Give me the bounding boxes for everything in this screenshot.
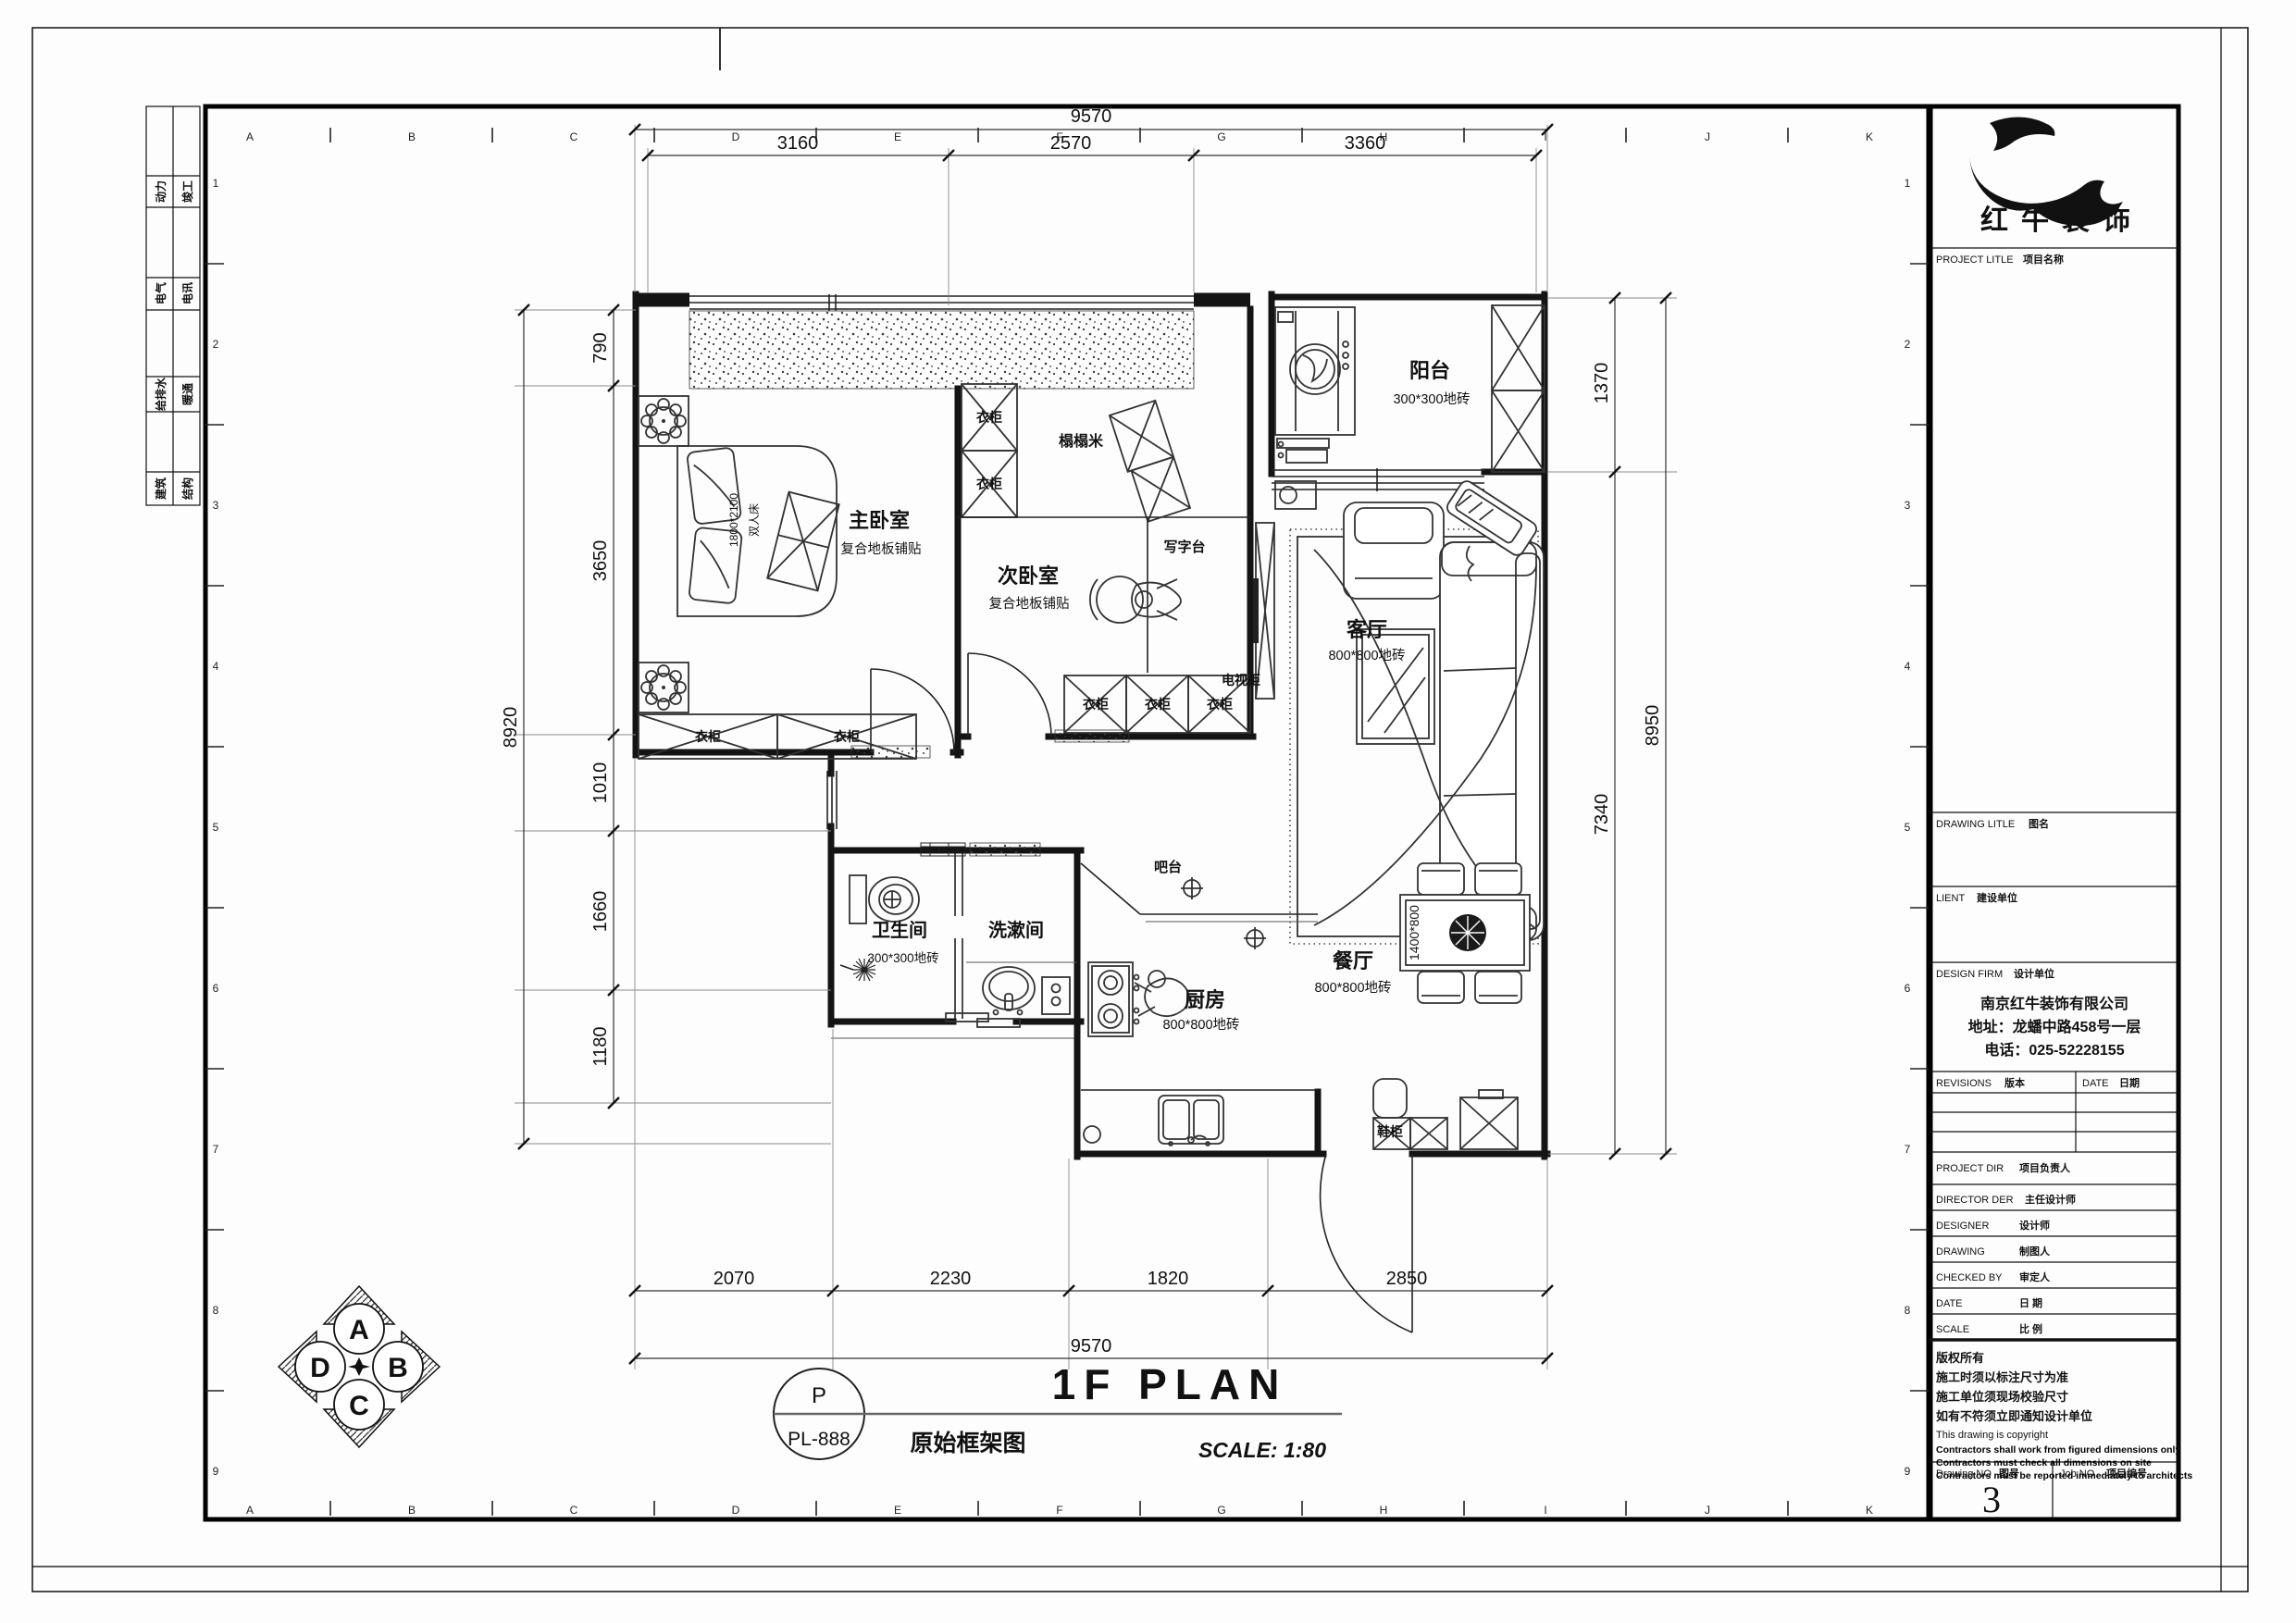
tatami-label: 榻榻米 — [1059, 432, 1104, 450]
second-bedroom-door — [968, 653, 1051, 737]
room-floor-balcony: 300*300地砖 — [1393, 391, 1470, 407]
floor-drain — [1275, 481, 1316, 509]
discipline-label: 电气 — [154, 282, 168, 304]
plant-box — [639, 663, 689, 712]
copyright-line: 施工单位须现场校验尺寸 — [1936, 1390, 2068, 1404]
compass: A B C D — [279, 1286, 440, 1447]
copyright-line: Contractors shall work from figured dime… — [1936, 1444, 2180, 1456]
tb-drawing-title-en: DRAWING LITLE — [1936, 819, 2015, 830]
room-floor-master: 复合地板铺贴 — [841, 540, 922, 557]
copyright-line: This drawing is copyright — [1936, 1430, 2048, 1441]
grid-number-right: 9 — [1905, 1465, 1911, 1478]
bay-window — [636, 294, 1250, 389]
dim-top-seg: 3360 — [1345, 133, 1386, 154]
grid-number-right: 2 — [1905, 338, 1911, 351]
room-label-living: 客厅 — [1347, 618, 1387, 641]
dim-right-seg: 7340 — [1592, 794, 1612, 836]
desk-chair-person — [1090, 576, 1181, 623]
tb-drawing-cn: 制图人 — [2019, 1245, 2051, 1258]
discipline-label: 电讯 — [180, 282, 194, 304]
room-label-bath: 卫生间 — [872, 920, 927, 941]
dim-bottom-seg: 2070 — [714, 1269, 755, 1289]
room-label-kitchen: 厨房 — [1185, 988, 1225, 1011]
grid-letter-top: D — [732, 130, 740, 143]
plan-scale: SCALE: 1:80 — [1198, 1438, 1326, 1462]
tb-checked-en: CHECKED BY — [1936, 1272, 2003, 1283]
grid-letter-bottom: F — [1056, 1504, 1062, 1517]
vanity — [966, 962, 1077, 1015]
master-bedroom: 1800*2100 双人床 衣柜 衣柜 主卧室 复合地板铺贴 — [639, 396, 922, 759]
dim-right-seg: 1370 — [1592, 363, 1612, 404]
dim-top-overall: 9570 — [1071, 106, 1112, 127]
bar-symbol — [1244, 927, 1266, 949]
dining-room: 1400*800 餐厅 800*800地砖 鞋柜 — [1314, 863, 1530, 1149]
dim-bottom-seg: 1820 — [1148, 1269, 1189, 1289]
grid-letter-top: K — [1866, 130, 1873, 143]
grid-letter-top: E — [894, 130, 901, 143]
bathroom: 卫生间 300*300地砖 洗漱间 — [840, 875, 1077, 1015]
tb-scale-cn: 比 例 — [2019, 1322, 2042, 1335]
wardrobe-label: 衣柜 — [1207, 697, 1233, 712]
grid-letter-top: B — [408, 130, 416, 143]
grid-number-right: 8 — [1905, 1304, 1911, 1317]
grid-letter-bottom: C — [570, 1504, 578, 1517]
room-label-wash: 洗漱间 — [988, 920, 1044, 941]
tb-drawing-en: DRAWING — [1936, 1246, 1985, 1258]
dim-left-overall: 8920 — [501, 707, 521, 749]
dim-top-seg: 2570 — [1050, 133, 1092, 154]
copyright-line: 施工时须以标注尺寸为准 — [1936, 1370, 2068, 1384]
grid-number-left: 6 — [213, 982, 219, 995]
washing-machine — [1275, 307, 1355, 435]
tb-client-en: LIENT — [1936, 893, 1965, 904]
copyright-line: Contractors must check all dimensions on… — [1936, 1457, 2152, 1468]
plan-subtitle: 原始框架图 — [910, 1431, 1025, 1456]
plan-title-bar: P PL-888 1F PLAN 原始框架图 SCALE: 1:80 — [774, 1360, 1342, 1462]
tb-date-cn: 日期 — [2119, 1076, 2140, 1089]
grid-number-left: 4 — [213, 660, 219, 673]
shoe-cabinet-label: 鞋柜 — [1377, 1124, 1403, 1139]
kitchen-sink — [1159, 1096, 1223, 1146]
tb-company-name: 南京红牛装饰有限公司 — [1980, 995, 2128, 1012]
master-bedroom-door — [871, 669, 954, 752]
grid-letter-top: G — [1217, 130, 1225, 143]
double-bed: 1800*2100 双人床 — [677, 446, 839, 616]
tb-drawing-no-cn: 图号 — [1999, 1468, 2019, 1480]
copyright-line: 版权所有 — [1936, 1351, 1984, 1365]
armchair — [1344, 502, 1444, 599]
kitchen-drain — [1084, 1126, 1100, 1143]
grid-number-right: 3 — [1905, 499, 1911, 512]
room-label-second: 次卧室 — [998, 564, 1059, 588]
tb-company-phone: 电话：025-52228155 — [1984, 1041, 2124, 1059]
grid-letter-bottom: H — [1380, 1504, 1388, 1517]
compass-label-n: A — [349, 1315, 369, 1345]
tv-cabinet-label: 电视柜 — [1222, 673, 1260, 688]
room-label-dining: 餐厅 — [1333, 949, 1373, 973]
wardrobe-label: 衣柜 — [1083, 697, 1109, 712]
tb-design-firm-cn: 设计单位 — [2014, 967, 2054, 980]
grid-number-left: 7 — [213, 1143, 219, 1156]
tb-checked-cn: 审定人 — [2019, 1270, 2051, 1283]
grid-letter-bottom: G — [1217, 1504, 1225, 1517]
dim-left-seg: 1010 — [590, 762, 611, 804]
dim-top-seg: 3160 — [777, 133, 819, 154]
grid-number-left: 1 — [213, 177, 219, 190]
tb-revisions-en: REVISIONS — [1936, 1078, 1992, 1089]
sheet-borders — [32, 28, 2248, 1592]
tb-date-en: DATE — [2082, 1078, 2109, 1089]
tb-project-dir-cn: 项目负责人 — [2019, 1161, 2071, 1174]
tatami-pillows — [1110, 401, 1190, 523]
grid-number-left: 3 — [213, 499, 219, 512]
grid-letter-top: J — [1705, 130, 1710, 143]
tb-client-cn: 建设单位 — [1977, 891, 2017, 904]
tb-date2-en: DATE — [1936, 1298, 1963, 1309]
wardrobe-label: 衣柜 — [1145, 697, 1171, 712]
tb-job-no-cn: 项目编号 — [2106, 1467, 2147, 1480]
bed-name-label: 双人床 — [748, 503, 761, 537]
compass-label-s: C — [349, 1391, 369, 1421]
floor-plan: 1800*2100 双人床 衣柜 衣柜 主卧室 复合地板铺贴 衣柜 — [636, 294, 1547, 1332]
grid-number-right: 6 — [1905, 982, 1911, 995]
tb-drawing-no-value: 3 — [1982, 1479, 2001, 1520]
company-logo-text: 红牛装饰 — [1980, 205, 2143, 236]
room-floor-kitchen: 800*800地砖 — [1162, 1017, 1239, 1033]
second-bedroom: 衣柜 衣柜 榻榻米 写字台 — [958, 384, 1250, 733]
discipline-label: 建筑 — [154, 477, 168, 501]
dim-bottom-seg: 2850 — [1386, 1269, 1428, 1289]
kitchen-person — [1135, 971, 1189, 1016]
tb-revisions-cn: 版本 — [2004, 1076, 2025, 1089]
room-label-balcony: 阳台 — [1409, 359, 1450, 382]
plan-ref-number: PL-888 — [788, 1429, 850, 1450]
tb-design-firm-en: DESIGN FIRM — [1936, 969, 2003, 980]
grid-letter-top: C — [570, 130, 578, 143]
writing-desk: 写字台 — [1148, 517, 1206, 673]
wardrobe-label: 衣柜 — [976, 410, 1002, 425]
discipline-label: 给排水 — [154, 377, 168, 411]
dim-bottom-seg: 2230 — [930, 1269, 972, 1289]
wardrobe-label: 衣柜 — [695, 729, 721, 744]
kitchen: 吧台 — [1081, 859, 1318, 1146]
plant-box — [639, 396, 689, 446]
grid-number-left: 5 — [213, 821, 219, 834]
dim-right-overall: 8950 — [1643, 705, 1663, 747]
room-floor-second: 复合地板铺贴 — [989, 595, 1070, 612]
tb-project-title-cn: 项目名称 — [2023, 253, 2064, 266]
toilet — [850, 875, 919, 923]
balcony: 阳台 300*300地砖 — [1275, 305, 1545, 509]
company-logo: 红牛装饰 — [1969, 117, 2143, 236]
tb-project-title-en: PROJECT LITLE — [1936, 254, 2014, 266]
discipline-label: 结构 — [180, 477, 194, 500]
tb-director-cn: 主任设计师 — [2025, 1193, 2076, 1206]
dim-left-seg: 1660 — [590, 891, 611, 933]
dim-bottom-overall: 9570 — [1071, 1336, 1112, 1357]
grid-letter-bottom: B — [408, 1504, 416, 1517]
tb-company-address: 地址：龙蟠中路458号一层 — [1968, 1018, 2141, 1035]
grid-letter-bottom: E — [894, 1504, 901, 1517]
grid-letter-top: A — [246, 130, 254, 143]
grid-number-right: 5 — [1905, 821, 1911, 834]
compass-label-e: B — [388, 1353, 408, 1383]
plan-ref-letter: P — [812, 1383, 826, 1408]
copyright-line: 如有不符须立即通知设计单位 — [1936, 1409, 2092, 1423]
plan-title: 1F PLAN — [1052, 1360, 1288, 1408]
room-floor-dining: 800*800地砖 — [1314, 980, 1391, 996]
entry-door — [1321, 1154, 1412, 1332]
grid-number-left: 8 — [213, 1304, 219, 1317]
room-floor-living: 800*800地砖 — [1328, 648, 1405, 663]
dim-left-seg: 790 — [590, 332, 611, 363]
compass-star — [348, 1357, 370, 1376]
compass-label-w: D — [310, 1353, 330, 1383]
grid-number-right: 4 — [1905, 660, 1911, 673]
grid-number-right: 1 — [1905, 177, 1911, 190]
wardrobe-column: 衣柜 衣柜 — [962, 384, 1017, 517]
balcony-cabinet — [1277, 439, 1329, 463]
discipline-label: 动力 — [154, 180, 168, 203]
tb-date2-cn: 日 期 — [2019, 1296, 2042, 1309]
tb-scale-en: SCALE — [1936, 1324, 1969, 1335]
grid-letter-bottom: D — [732, 1504, 740, 1517]
tb-designer-cn: 设计师 — [2019, 1219, 2050, 1232]
bar-label: 吧台 — [1154, 859, 1182, 875]
tb-drawing-title-cn: 图名 — [2029, 817, 2049, 830]
balcony-window-panels — [1492, 305, 1545, 472]
cad-canvas: 动力 竣工 电气 电讯 给排水 暖通 建筑 结构 AABBCCDDEEFFGGH… — [0, 0, 2296, 1623]
dim-left-seg: 1180 — [590, 1026, 611, 1066]
desk-label: 写字台 — [1163, 539, 1205, 555]
tb-job-no-en: Job NO — [2060, 1468, 2095, 1480]
title-block: 红牛装饰 PROJECT LITLE 项目名称 DRAWING LITLE 图名… — [1930, 106, 2192, 1520]
tb-designer-en: DESIGNER — [1936, 1220, 1990, 1232]
discipline-label: 竣工 — [180, 180, 194, 203]
tb-project-dir-en: PROJECT DIR — [1936, 1163, 2004, 1174]
grid-letter-bottom: A — [246, 1504, 254, 1517]
room-floor-bath: 300*300地砖 — [867, 951, 938, 965]
grid-number-left: 9 — [213, 1465, 219, 1478]
grid-letter-bottom: K — [1866, 1504, 1873, 1517]
bar-symbol — [1181, 877, 1203, 899]
wardrobe-label: 衣柜 — [976, 477, 1002, 491]
shoe-cabinet: 鞋柜 — [1373, 1079, 1518, 1149]
bed-size-label: 1800*2100 — [727, 493, 740, 547]
dim-left-seg: 3650 — [590, 540, 611, 582]
dining-table-size: 1400*800 — [1407, 905, 1421, 960]
bathroom-sliding-door — [946, 1013, 1020, 1027]
discipline-label: 暖通 — [180, 383, 194, 405]
drawing-sheet: 动力 竣工 电气 电讯 给排水 暖通 建筑 结构 AABBCCDDEEFFGGH… — [0, 0, 2296, 1623]
stove — [1088, 962, 1139, 1036]
wardrobe-label: 衣柜 — [834, 729, 860, 744]
grid-number-right: 7 — [1905, 1143, 1911, 1156]
discipline-strip: 动力 竣工 电气 电讯 给排水 暖通 建筑 结构 — [146, 106, 200, 505]
grid-number-left: 2 — [213, 338, 219, 351]
grid-letter-bottom: J — [1705, 1504, 1710, 1517]
room-label-master: 主卧室 — [849, 509, 910, 532]
grid-letter-bottom: I — [1544, 1504, 1546, 1517]
tb-director-en: DIRECTOR DER — [1936, 1195, 2014, 1206]
